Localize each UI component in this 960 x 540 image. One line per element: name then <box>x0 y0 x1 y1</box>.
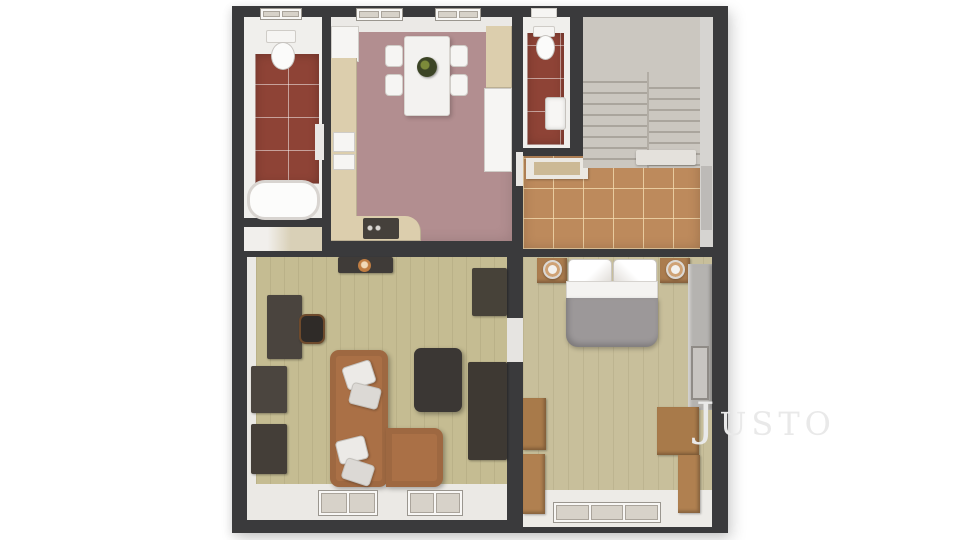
bathroom-window <box>260 8 302 20</box>
bathroom-door <box>315 124 324 160</box>
dining-chair <box>450 74 468 96</box>
bathroom-floor-tiles <box>255 54 319 184</box>
desk-chair <box>299 314 325 344</box>
toilet <box>271 42 295 70</box>
media-unit <box>468 362 507 460</box>
living-room-window <box>318 490 378 516</box>
kitchen-window <box>435 8 481 21</box>
closet-nook <box>244 227 322 251</box>
cabinet <box>251 424 287 474</box>
stove <box>363 218 399 239</box>
staircase-bottom-step <box>636 150 696 165</box>
fridge <box>484 88 512 172</box>
cabinet <box>251 366 287 413</box>
bedside-lamp <box>543 260 562 279</box>
wash-basin <box>545 97 566 130</box>
toilet-cistern <box>266 30 296 43</box>
bedside-lamp <box>666 260 685 279</box>
watermark: Justo <box>696 396 836 442</box>
bathtub <box>247 180 320 220</box>
dresser <box>657 407 699 455</box>
bedroom-window <box>553 502 661 523</box>
wc-vent-window <box>531 8 557 18</box>
kitchen-sink <box>333 132 355 152</box>
entry-door <box>516 152 523 186</box>
kitchen-appliance <box>333 154 355 170</box>
kitchen-window <box>356 8 403 21</box>
candle <box>358 259 371 272</box>
plant-centerpiece <box>417 57 437 77</box>
wardrobe-side <box>523 454 545 514</box>
coffee-table <box>414 348 462 412</box>
kitchen-counter-right <box>486 26 512 88</box>
corner-sofa-chaise-section <box>386 428 443 487</box>
desk <box>267 295 302 359</box>
living-room-window <box>407 490 463 516</box>
toilet <box>536 35 555 60</box>
media-unit <box>472 268 507 316</box>
dining-chair <box>385 45 403 67</box>
dining-chair <box>450 45 468 67</box>
hall-wall-panel <box>701 166 712 230</box>
bed-duvet <box>566 298 658 347</box>
floor-plan-render: Justo <box>0 0 960 540</box>
doormat-center <box>534 162 580 175</box>
dresser <box>523 398 546 450</box>
corner-cabinet <box>331 26 359 62</box>
dining-chair <box>385 74 403 96</box>
wardrobe-side <box>678 455 700 513</box>
bedroom-door <box>507 318 523 362</box>
